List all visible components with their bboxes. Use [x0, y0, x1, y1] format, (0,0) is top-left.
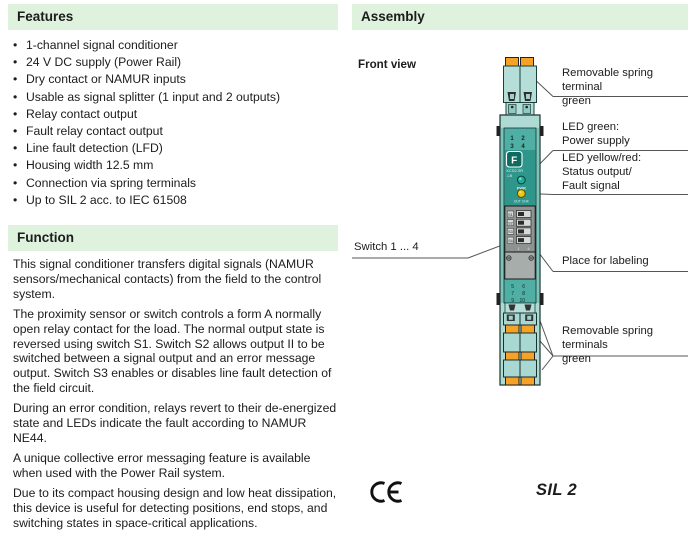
feature-item: Up to SIL 2 acc. to IEC 61508 [12, 192, 338, 209]
feature-item: Dry contact or NAMUR inputs [12, 71, 338, 88]
dip-label: S1 [508, 213, 513, 217]
bottom-spring-terminals [504, 313, 537, 385]
orange-clamp [521, 377, 535, 385]
feature-item: Relay contact output [12, 106, 338, 123]
callout-place-for-labeling: Place for labeling [562, 255, 649, 269]
feature-item: Connection via spring terminals [12, 175, 338, 192]
function-paragraph: Due to its compact housing design and lo… [13, 486, 342, 531]
feature-item: Housing width 12.5 mm [12, 157, 338, 174]
terminal-number: 5 [511, 284, 514, 290]
led-yellow-icon [517, 190, 525, 198]
led-green-icon [517, 176, 525, 184]
bottom-connector-strip [505, 303, 535, 313]
device-front-view: 1 2 3 4 F KCD2-SR .LB PWR OUT CHK S1 [497, 58, 544, 386]
orange-clamp [521, 325, 535, 333]
terminal-number: 6 [522, 284, 525, 290]
feature-item: 1-channel signal conditioner [12, 37, 338, 54]
callout-switches: Switch 1 ... 4 [354, 241, 419, 255]
callout-removable-terminal-top: Removable spring terminal green [562, 67, 688, 109]
callout-led-green: LED green: Power supply [562, 121, 630, 149]
dip-label: S2 [508, 222, 513, 226]
front-view-label: Front view [358, 58, 416, 72]
feature-item: 24 V DC supply (Power Rail) [12, 54, 338, 71]
dip-label: S3 [508, 230, 513, 234]
sil2-badge: SIL 2 [536, 481, 577, 500]
terminal-number: 7 [511, 291, 514, 297]
function-paragraph: A unique collective error messaging feat… [13, 451, 342, 481]
device-face: F KCD2-SR .LB PWR OUT CHK [505, 150, 535, 206]
model-label-line1: KCD2-SR [507, 169, 524, 173]
callout-removable-terminals-bottom: Removable spring terminals green [562, 325, 688, 367]
labeling-area [505, 252, 535, 279]
function-text: This signal conditioner transfers digita… [13, 257, 342, 535]
function-title: Function [17, 230, 74, 245]
dip-switch-panel: S1 S2 S3 S4 1 4 [505, 206, 535, 252]
top-spring-terminal [504, 58, 537, 116]
led-yellow-caption2: OUT CHK [514, 200, 530, 204]
orange-clamp [521, 58, 534, 67]
feature-item: Usable as signal splitter (1 input and 2… [12, 89, 338, 106]
orange-clamp [506, 352, 520, 360]
features-title: Features [17, 9, 73, 24]
ce-mark-icon [367, 480, 407, 509]
feature-item: Line fault detection (LFD) [12, 140, 338, 157]
features-section-header: Features [8, 4, 338, 30]
brand-logo-letter: F [511, 156, 517, 167]
orange-clamp [521, 352, 535, 360]
function-paragraph: During an error condition, relays revert… [13, 401, 342, 446]
assembly-section-header: Assembly [352, 4, 688, 30]
features-list: 1-channel signal conditioner 24 V DC sup… [12, 37, 338, 209]
function-paragraph: This signal conditioner transfers digita… [13, 257, 342, 302]
assembly-title: Assembly [361, 9, 425, 24]
model-label-line2: .LB [507, 174, 513, 178]
terminal-number: 8 [522, 291, 525, 297]
orange-clamp [506, 325, 520, 333]
callout-led-yellow: LED yellow/red: Status output/ Fault sig… [562, 152, 641, 194]
function-section-header: Function [8, 225, 338, 251]
feature-item: Fault relay contact output [12, 123, 338, 140]
orange-clamp [506, 377, 520, 385]
orange-clamp [506, 58, 519, 67]
function-paragraph: The proximity sensor or switch controls … [13, 307, 342, 396]
dip-label: S4 [508, 239, 513, 243]
